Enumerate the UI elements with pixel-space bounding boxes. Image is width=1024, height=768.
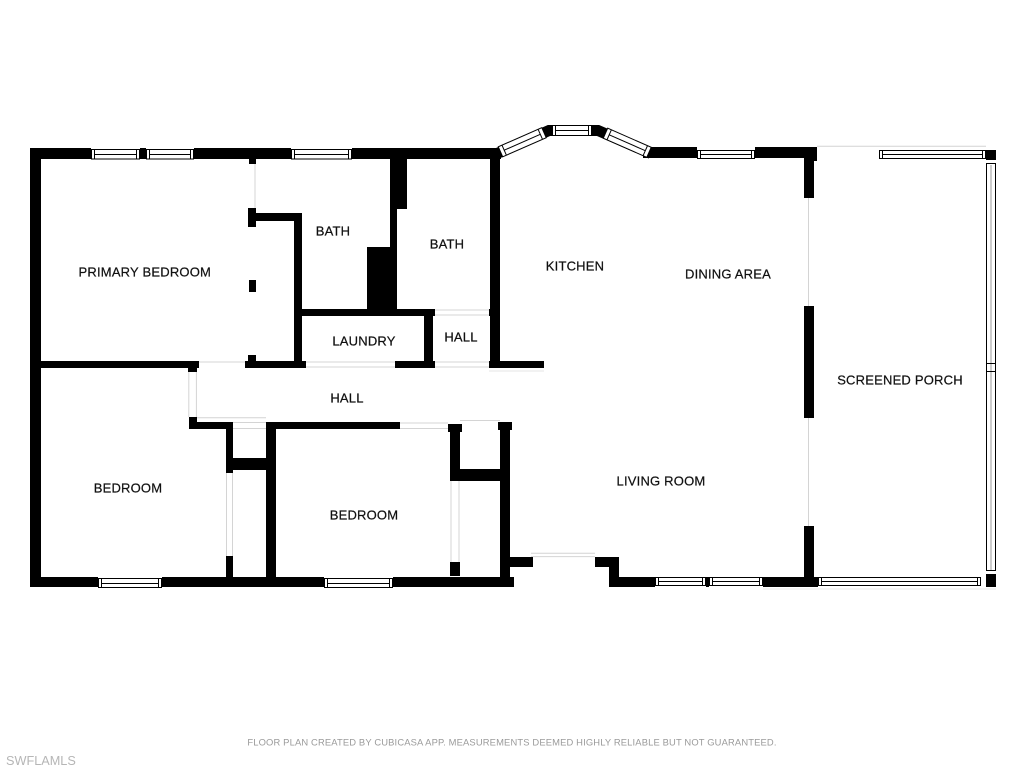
svg-text:BEDROOM: BEDROOM bbox=[94, 481, 163, 496]
svg-text:PRIMARY BEDROOM: PRIMARY BEDROOM bbox=[79, 265, 212, 280]
svg-text:LAUNDRY: LAUNDRY bbox=[332, 334, 395, 349]
svg-text:BEDROOM: BEDROOM bbox=[330, 508, 399, 523]
svg-text:DINING AREA: DINING AREA bbox=[685, 267, 771, 282]
svg-text:HALL: HALL bbox=[330, 391, 363, 406]
svg-text:SWFLAMLS: SWFLAMLS bbox=[6, 754, 76, 768]
svg-text:BATH: BATH bbox=[430, 237, 465, 252]
svg-text:LIVING ROOM: LIVING ROOM bbox=[617, 474, 706, 489]
svg-text:BATH: BATH bbox=[316, 224, 351, 239]
svg-text:SCREENED PORCH: SCREENED PORCH bbox=[837, 373, 963, 388]
svg-text:HALL: HALL bbox=[444, 330, 477, 345]
svg-text:KITCHEN: KITCHEN bbox=[546, 259, 604, 274]
svg-text:FLOOR PLAN CREATED BY CUBICASA: FLOOR PLAN CREATED BY CUBICASA APP. MEAS… bbox=[247, 737, 776, 748]
